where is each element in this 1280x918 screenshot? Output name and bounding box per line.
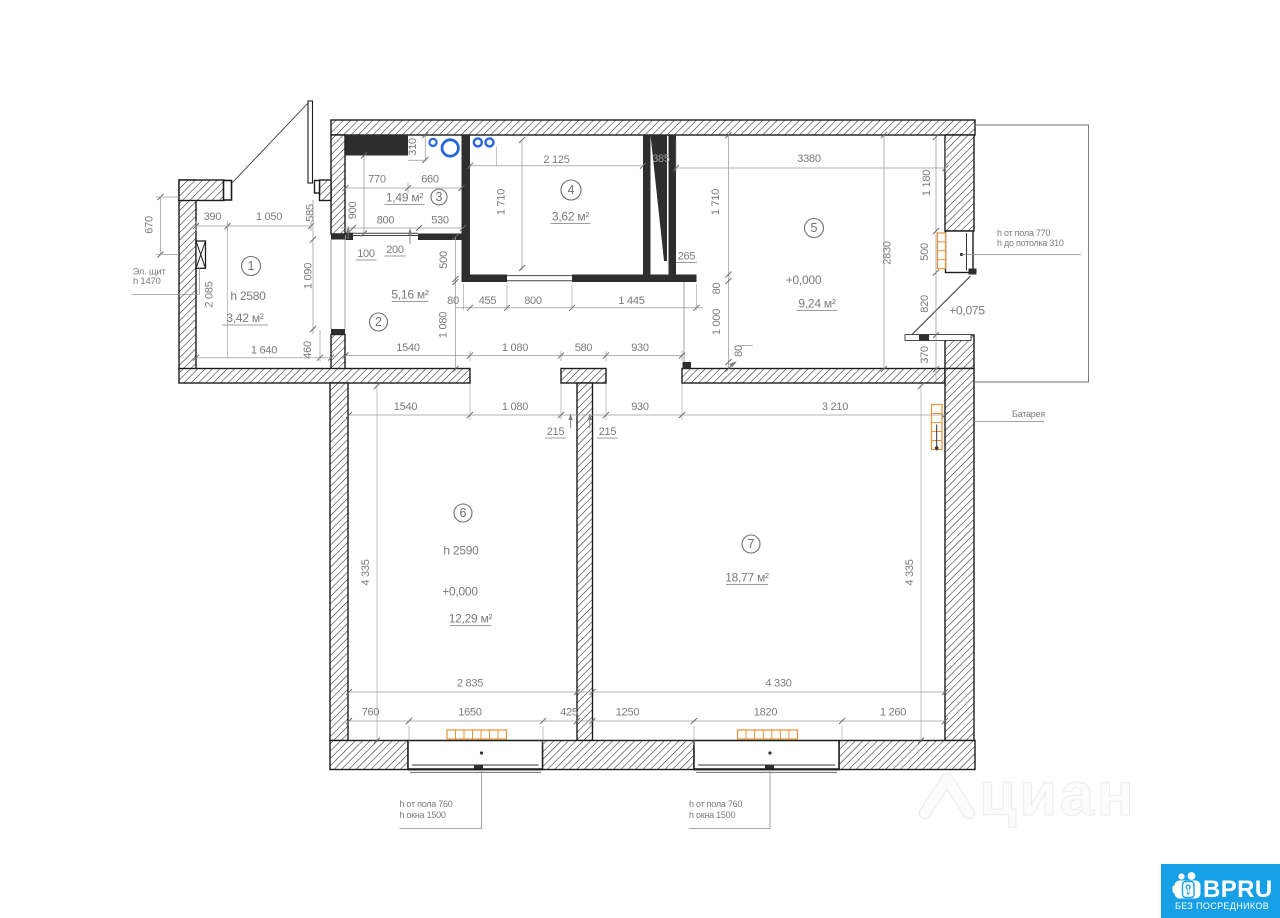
- svg-text:h 2590: h 2590: [443, 544, 479, 558]
- svg-text:БЕЗ ПОСРЕДНИКОВ: БЕЗ ПОСРЕДНИКОВ: [1175, 901, 1269, 911]
- svg-text:3 210: 3 210: [822, 401, 848, 413]
- svg-text:800: 800: [377, 215, 395, 227]
- svg-text:18,77 м²: 18,77 м²: [725, 571, 769, 585]
- svg-text:h 1470: h 1470: [133, 276, 161, 287]
- svg-text:2 835: 2 835: [457, 678, 483, 690]
- svg-text:5: 5: [811, 221, 818, 235]
- svg-text:5,16 м²: 5,16 м²: [391, 288, 428, 302]
- svg-text:h от пола 760: h от пола 760: [689, 799, 742, 809]
- svg-text:1 000: 1 000: [711, 309, 723, 335]
- svg-text:1 050: 1 050: [256, 211, 282, 223]
- svg-text:500: 500: [438, 251, 450, 269]
- svg-text:1 260: 1 260: [880, 707, 906, 719]
- svg-text:455: 455: [479, 295, 497, 307]
- svg-text:+0,000: +0,000: [786, 273, 822, 287]
- svg-text:1 180: 1 180: [921, 170, 933, 196]
- svg-text:100: 100: [357, 248, 375, 260]
- svg-text:1,49 м²: 1,49 м²: [386, 191, 423, 205]
- svg-text:3380: 3380: [797, 153, 821, 165]
- svg-text:930: 930: [631, 401, 649, 413]
- svg-text:930: 930: [631, 342, 649, 354]
- svg-text:1: 1: [248, 259, 255, 273]
- svg-text:80: 80: [447, 295, 459, 307]
- svg-text:1540: 1540: [396, 342, 420, 354]
- svg-text:1 710: 1 710: [496, 189, 508, 215]
- svg-text:1 640: 1 640: [251, 345, 277, 357]
- svg-text:Батарея: Батарея: [1012, 409, 1045, 419]
- svg-text:2830: 2830: [882, 241, 894, 265]
- svg-text:9,24 м²: 9,24 м²: [798, 297, 835, 311]
- svg-text:1250: 1250: [616, 707, 640, 719]
- svg-text:циан: циан: [979, 760, 1137, 828]
- svg-text:2 085: 2 085: [204, 281, 216, 307]
- svg-text:3,62 м²: 3,62 м²: [552, 210, 589, 224]
- svg-text:370: 370: [919, 346, 931, 364]
- svg-text:310: 310: [407, 138, 419, 156]
- svg-text:1540: 1540: [394, 401, 418, 413]
- svg-text:580: 580: [575, 342, 593, 354]
- svg-text:BPRU: BPRU: [1203, 876, 1273, 903]
- svg-text:1 445: 1 445: [618, 295, 644, 307]
- svg-text:265: 265: [678, 251, 696, 263]
- svg-text:1650: 1650: [458, 707, 482, 719]
- svg-text:530: 530: [431, 215, 449, 227]
- svg-text:4: 4: [568, 183, 575, 197]
- svg-text:900: 900: [347, 202, 359, 220]
- svg-text:3,42 м²: 3,42 м²: [226, 311, 263, 325]
- svg-text:h от пола 770: h от пола 770: [997, 228, 1050, 238]
- svg-text:80: 80: [711, 283, 723, 295]
- svg-text:h окна 1500: h окна 1500: [689, 810, 735, 820]
- svg-text:215: 215: [547, 426, 565, 438]
- svg-text:+0,075: +0,075: [949, 304, 985, 318]
- svg-text:1 090: 1 090: [303, 263, 315, 289]
- svg-text:760: 760: [362, 707, 380, 719]
- svg-text:4 330: 4 330: [765, 678, 791, 690]
- svg-text:200: 200: [386, 244, 404, 256]
- svg-text:660: 660: [421, 174, 439, 186]
- svg-text:7: 7: [748, 537, 755, 551]
- svg-text:2: 2: [375, 315, 382, 329]
- svg-text:215: 215: [599, 426, 617, 438]
- svg-text:h от пола 760: h от пола 760: [399, 799, 452, 809]
- svg-text:800: 800: [524, 295, 542, 307]
- svg-text:h 2580: h 2580: [230, 289, 266, 303]
- svg-text:1 710: 1 710: [710, 189, 722, 215]
- svg-text:1820: 1820: [754, 707, 778, 719]
- svg-text:585: 585: [305, 204, 317, 222]
- svg-text:4 335: 4 335: [904, 559, 916, 585]
- svg-text:770: 770: [368, 174, 386, 186]
- svg-text:2 125: 2 125: [543, 154, 569, 166]
- svg-text:6: 6: [460, 506, 467, 520]
- svg-text:1 080: 1 080: [502, 342, 528, 354]
- svg-text:1 080: 1 080: [502, 401, 528, 413]
- svg-text:385: 385: [652, 153, 670, 165]
- svg-text:12,29 м²: 12,29 м²: [449, 612, 493, 626]
- svg-text:3: 3: [436, 190, 443, 204]
- svg-text:425: 425: [560, 707, 578, 719]
- svg-text:670: 670: [144, 216, 156, 234]
- svg-text:1 080: 1 080: [438, 312, 450, 338]
- svg-text:500: 500: [919, 243, 931, 261]
- svg-text:h до потолка 310: h до потолка 310: [997, 238, 1064, 248]
- svg-text:h окна 1500: h окна 1500: [399, 810, 445, 820]
- svg-text:390: 390: [204, 211, 222, 223]
- svg-text:80: 80: [733, 345, 745, 357]
- svg-text:+0,000: +0,000: [442, 585, 478, 599]
- svg-text:460: 460: [302, 341, 314, 359]
- svg-text:820: 820: [919, 295, 931, 313]
- svg-text:4 335: 4 335: [360, 559, 372, 585]
